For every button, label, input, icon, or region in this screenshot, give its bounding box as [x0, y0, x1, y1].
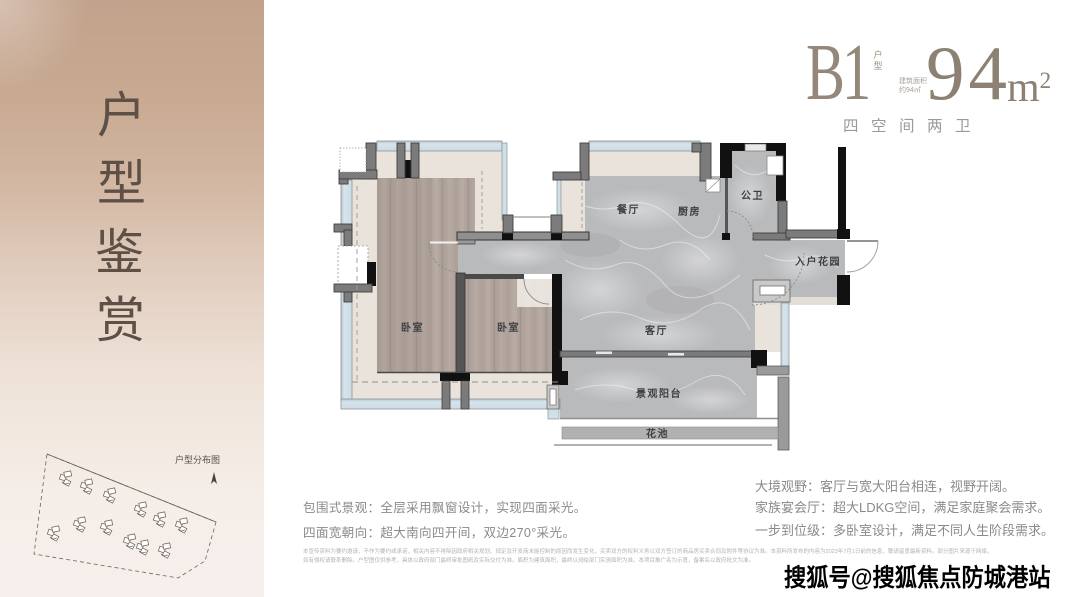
svg-text:花池: 花池: [646, 427, 669, 440]
svg-text:卧室: 卧室: [401, 321, 424, 334]
svg-text:餐厅: 餐厅: [616, 203, 640, 216]
svg-text:公卫: 公卫: [741, 190, 764, 202]
svg-text:户型分布图: 户型分布图: [175, 454, 220, 465]
svg-text:客厅: 客厅: [644, 324, 668, 337]
svg-text:厨房: 厨房: [678, 205, 701, 218]
svg-text:卧室: 卧室: [497, 321, 520, 334]
svg-text:景观阳台: 景观阳台: [636, 387, 682, 400]
svg-text:入户花园: 入户花园: [795, 255, 841, 268]
